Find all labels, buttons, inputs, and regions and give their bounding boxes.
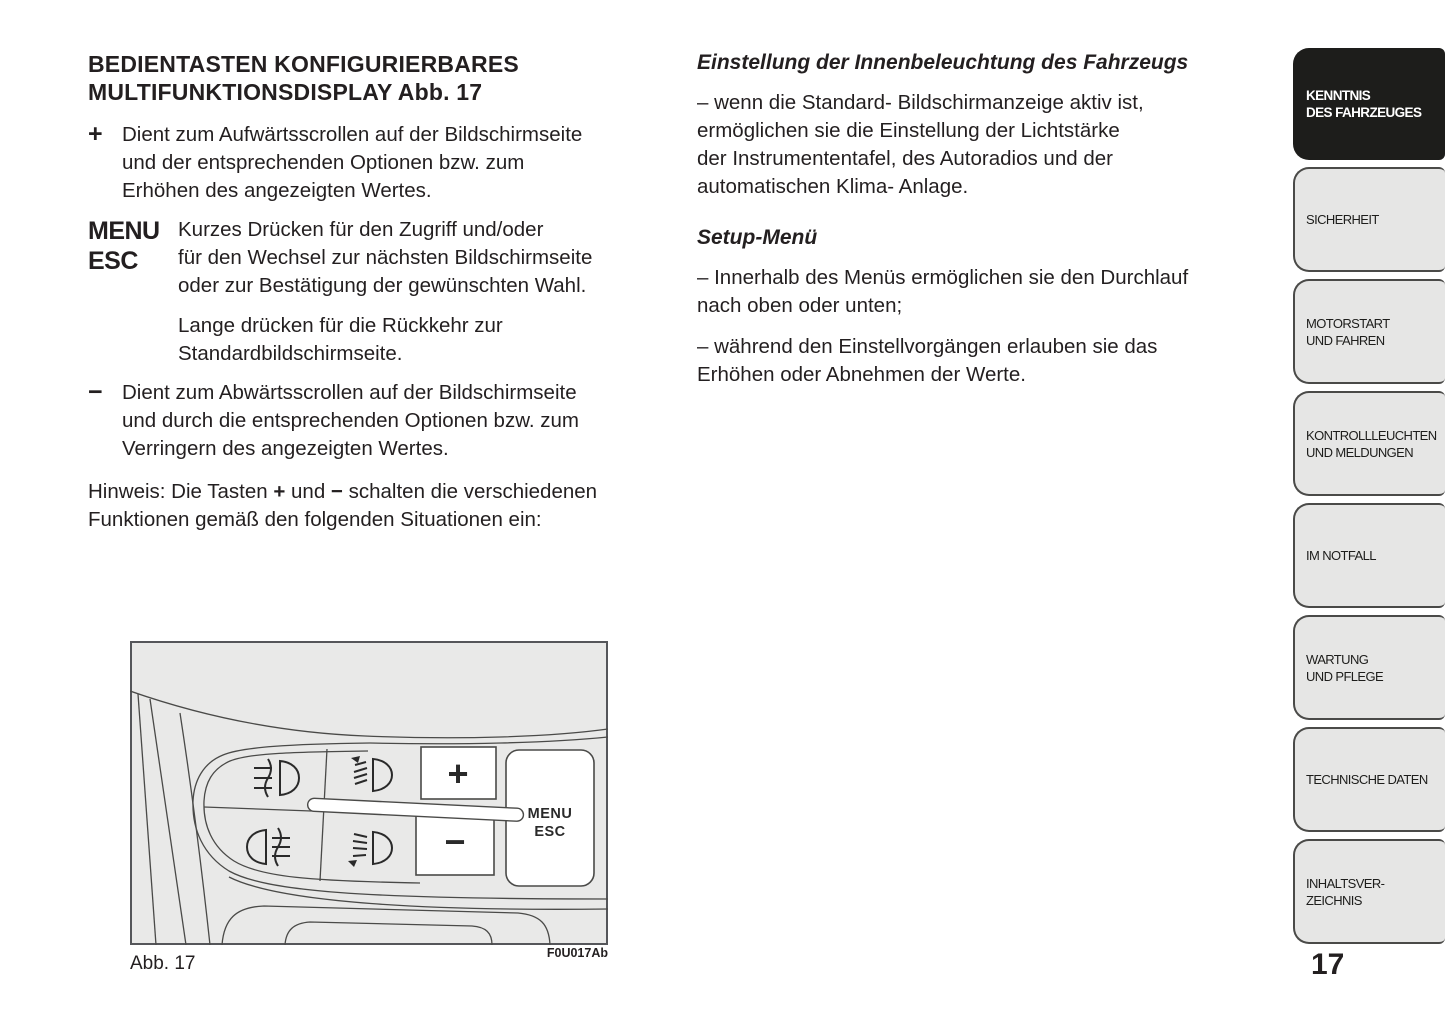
- figure-reference-code: F0U017Ab: [130, 946, 608, 960]
- plus-description-text: Dient zum Aufwärtsscrollen auf der Bilds…: [122, 121, 582, 205]
- chapter-tab-sidebar: KENNTNIS DES FAHRZEUGES SICHERHEIT MOTOR…: [1293, 48, 1445, 944]
- sidebar-tab-technische-daten: TECHNISCHE DATEN: [1293, 727, 1445, 832]
- minus-symbol: −: [88, 379, 122, 463]
- left-column: BEDIENTASTEN KONFIGURIERBARES MULTIFUNKT…: [88, 50, 673, 534]
- page-title: BEDIENTASTEN KONFIGURIERBARES MULTIFUNKT…: [88, 50, 673, 106]
- sidebar-tab-inhaltsverzeichnis: INHALTSVER- ZEICHNIS: [1293, 839, 1445, 944]
- sidebar-tab-wartung-und-pflege: WARTUNG UND PFLEGE: [1293, 615, 1445, 720]
- plus-button-description: + Dient zum Aufwärtsscrollen auf der Bil…: [88, 121, 673, 205]
- sidebar-tab-kontrollleuchten-und-meldungen: KONTROLLLEUCHTEN UND MELDUNGEN: [1293, 391, 1445, 496]
- interior-lighting-heading: Einstellung der Innenbeleuchtung des Fah…: [697, 50, 1262, 76]
- minus-description-text: Dient zum Abwärtsscrollen auf der Bildsc…: [122, 379, 579, 463]
- menu-esc-label: MENU ESC: [88, 216, 178, 368]
- menu-esc-description-text: Kurzes Drücken für den Zugriff und/oder …: [178, 216, 592, 368]
- minus-button-label: −: [444, 821, 465, 862]
- setup-menu-heading: Setup-Menü: [697, 225, 1262, 251]
- menu-esc-description: MENU ESC Kurzes Drücken für den Zugriff …: [88, 216, 673, 368]
- sidebar-tab-sicherheit: SICHERHEIT: [1293, 167, 1445, 272]
- dashboard-controls-drawing: + − MENU ESC: [130, 641, 608, 945]
- plus-button-label: +: [447, 753, 468, 794]
- menu-esc-long-press-text: Lange drücken für die Rückkehr zur Stand…: [178, 312, 592, 368]
- manual-page: { "colors": { "text": "#231f20", "tab_fi…: [0, 0, 1445, 1026]
- figure-caption: Abb. 17: [130, 953, 196, 975]
- setup-menu-bullet-2: – während den Einstellvorgängen erlauben…: [697, 333, 1262, 389]
- page-title-line1: BEDIENTASTEN KONFIGURIERBARES: [88, 50, 673, 78]
- sidebar-tab-kenntnis-des-fahrzeuges: KENNTNIS DES FAHRZEUGES: [1293, 48, 1445, 160]
- page-number: 17: [1311, 948, 1344, 982]
- interior-lighting-paragraph: – wenn die Standard- Bildschirmanzeige a…: [697, 89, 1262, 201]
- right-column: Einstellung der Innenbeleuchtung des Fah…: [697, 50, 1262, 402]
- minus-button-description: − Dient zum Abwärtsscrollen auf der Bild…: [88, 379, 673, 463]
- plus-symbol: +: [88, 121, 122, 205]
- page-title-line2: MULTIFUNKTIONSDISPLAY Abb. 17: [88, 78, 673, 106]
- menu-button-label-line2: ESC: [534, 824, 565, 840]
- figure-abb-17: + − MENU ESC: [130, 641, 608, 945]
- note-paragraph: Hinweis: Die Tasten + und − schalten die…: [88, 478, 673, 534]
- setup-menu-bullet-1: – Innerhalb des Menüs ermöglichen sie de…: [697, 264, 1262, 320]
- menu-button-label-line1: MENU: [528, 806, 573, 822]
- sidebar-tab-im-notfall: IM NOTFALL: [1293, 503, 1445, 608]
- sidebar-tab-motorstart-und-fahren: MOTORSTART UND FAHREN: [1293, 279, 1445, 384]
